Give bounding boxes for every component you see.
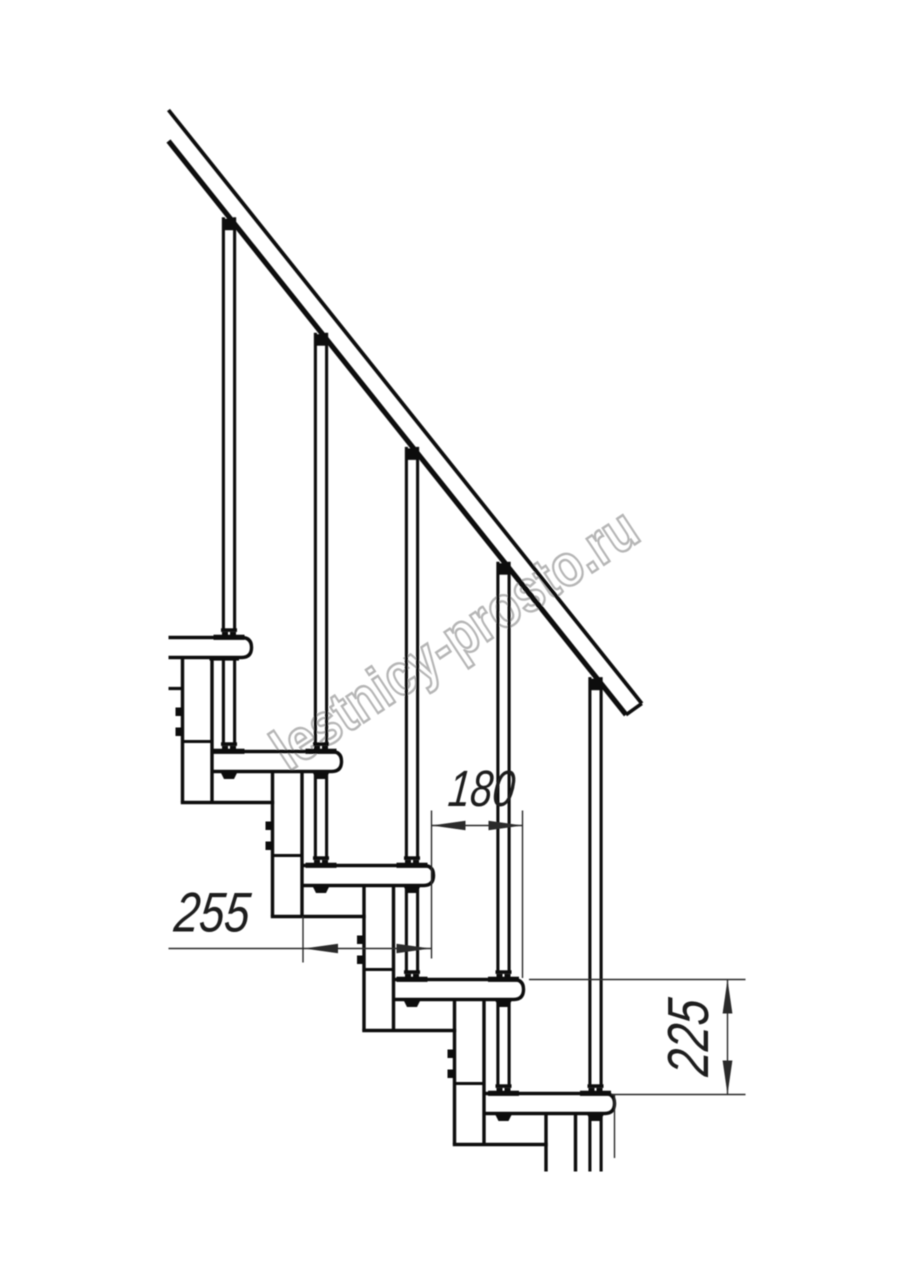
svg-text:225: 225 [656, 995, 721, 1079]
svg-text:255: 255 [171, 881, 254, 944]
svg-text:180: 180 [446, 760, 518, 817]
